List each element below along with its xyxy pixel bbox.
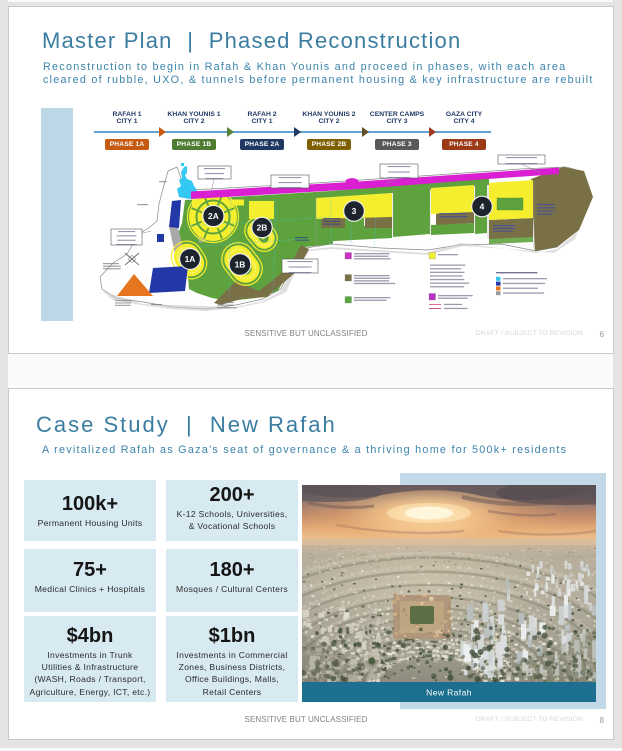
svg-text:2A: 2A bbox=[208, 211, 219, 221]
svg-text:3: 3 bbox=[352, 206, 357, 216]
svg-text:2B: 2B bbox=[257, 223, 268, 233]
svg-text:1A: 1A bbox=[185, 254, 196, 264]
svg-text:1B: 1B bbox=[235, 260, 246, 270]
svg-text:New Rafah: New Rafah bbox=[426, 688, 472, 698]
svg-text:4: 4 bbox=[480, 202, 485, 212]
